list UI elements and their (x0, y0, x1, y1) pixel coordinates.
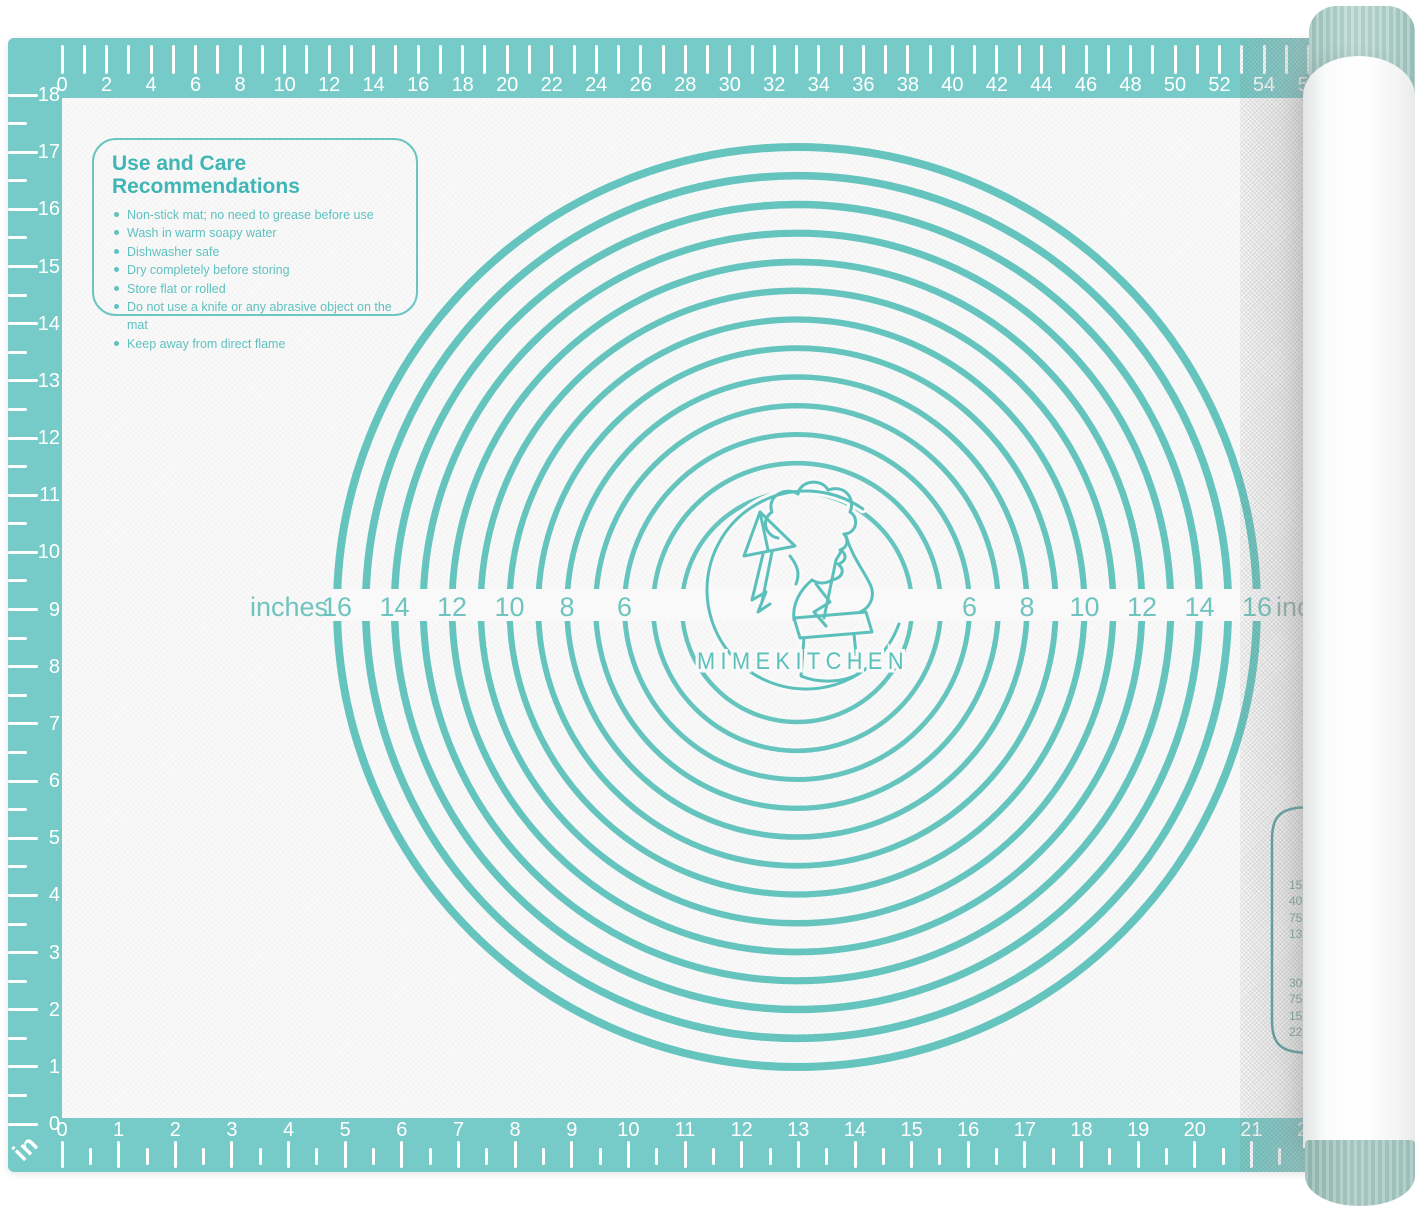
bottom-ruler-tick (627, 1141, 630, 1168)
top-ruler-tick (172, 45, 175, 74)
left-ruler-tick (8, 322, 38, 325)
bottom-ruler-half-tick (938, 1148, 941, 1165)
bottom-ruler-tick (854, 1141, 857, 1168)
left-ruler-tick (8, 494, 38, 497)
bottom-ruler-number: 16 (957, 1120, 979, 1140)
left-ruler-number: 0 (36, 1114, 60, 1134)
top-ruler-tick (906, 45, 909, 74)
bottom-ruler-half-tick (146, 1148, 149, 1165)
left-ruler-half-tick (8, 236, 27, 239)
top-ruler-tick (305, 45, 308, 74)
top-ruler-tick (194, 45, 197, 74)
top-ruler-tick (417, 45, 420, 74)
top-ruler-tick (884, 45, 887, 74)
left-ruler-number: 16 (36, 199, 60, 219)
bottom-ruler-half-tick (995, 1148, 998, 1165)
bottom-ruler-half-tick (825, 1148, 828, 1165)
bottom-ruler-tick (230, 1141, 233, 1168)
top-ruler-tick (1196, 45, 1199, 74)
bottom-ruler-half-tick (89, 1148, 92, 1165)
top-ruler-tick (239, 45, 242, 74)
left-ruler-half-tick (8, 122, 27, 125)
top-ruler-tick (728, 45, 731, 74)
left-ruler-half-tick (8, 694, 27, 697)
top-ruler-number: 14 (362, 75, 384, 95)
bottom-ruler-half-tick (882, 1148, 885, 1165)
mat-mesh-shadow (1240, 38, 1312, 1172)
bottom-ruler-number: 7 (453, 1120, 464, 1140)
top-ruler-tick (840, 45, 843, 74)
bottom-ruler-half-tick (202, 1148, 205, 1165)
care-item-text: Keep away from direct flame (127, 335, 285, 353)
bullet-dot (114, 267, 119, 272)
left-ruler-number: 5 (36, 828, 60, 848)
bottom-ruler-half-tick (769, 1148, 772, 1165)
top-ruler-tick (639, 45, 642, 74)
left-ruler-half-tick (8, 1094, 27, 1097)
bottom-ruler-half-tick (1165, 1148, 1168, 1165)
top-ruler-number: 48 (1119, 75, 1141, 95)
top-ruler-number: 24 (585, 75, 607, 95)
left-ruler-number: 1 (36, 1057, 60, 1077)
bottom-ruler-tick (287, 1141, 290, 1168)
top-ruler-tick (61, 45, 64, 74)
care-item: Dishwasher safe (112, 243, 400, 261)
top-ruler-tick (328, 45, 331, 74)
roll-body (1303, 56, 1415, 1148)
top-ruler-number: 34 (808, 75, 830, 95)
top-ruler-number: 26 (630, 75, 652, 95)
left-ruler-half-tick (8, 408, 27, 411)
left-ruler-number: 18 (36, 85, 60, 105)
left-ruler-half-tick (8, 579, 27, 582)
left-ruler-tick (8, 665, 38, 668)
bullet-dot (114, 212, 119, 217)
bottom-ruler-tick (910, 1141, 913, 1168)
top-ruler-number: 6 (190, 75, 201, 95)
top-ruler-tick (706, 45, 709, 74)
top-ruler-tick (483, 45, 486, 74)
top-ruler-tick (751, 45, 754, 74)
left-ruler-number: 14 (36, 314, 60, 334)
top-ruler-number: 20 (496, 75, 518, 95)
left-ruler-half-tick (8, 865, 27, 868)
left-ruler-number: 10 (36, 542, 60, 562)
top-ruler-tick (150, 45, 153, 74)
bottom-ruler-number: 11 (675, 1120, 696, 1140)
top-ruler-tick (461, 45, 464, 74)
bottom-ruler-tick (344, 1141, 347, 1168)
left-ruler-half-tick (8, 351, 27, 354)
left-ruler-tick (8, 894, 38, 897)
bottom-ruler-half-tick (429, 1148, 432, 1165)
top-ruler-tick (372, 45, 375, 74)
top-ruler-number: 32 (763, 75, 785, 95)
top-ruler-tick (439, 45, 442, 74)
top-ruler-tick (550, 45, 553, 74)
left-ruler-half-tick (8, 522, 27, 525)
product-photo-pastry-mat: inches16141210866810121416inchMIMEKITCHE… (0, 0, 1415, 1208)
left-ruler-half-tick (8, 637, 27, 640)
top-ruler-number: 50 (1164, 75, 1186, 95)
left-ruler-half-tick (8, 1037, 27, 1040)
bullet-dot (114, 304, 119, 309)
top-ruler-tick (1151, 45, 1154, 74)
bottom-ruler-half-tick (1052, 1148, 1055, 1165)
top-ruler-number: 46 (1075, 75, 1097, 95)
top-ruler-tick (862, 45, 865, 74)
bottom-ruler-tick (174, 1141, 177, 1168)
bottom-ruler-number: 2 (170, 1120, 181, 1140)
bottom-ruler-tick (400, 1141, 403, 1168)
top-ruler-number: 16 (407, 75, 429, 95)
left-ruler-number: 8 (36, 657, 60, 677)
bullet-dot (114, 341, 119, 346)
left-ruler-number: 11 (36, 485, 60, 505)
bottom-ruler-tick (514, 1141, 517, 1168)
bottom-ruler-tick (684, 1141, 687, 1168)
bottom-ruler-number: 1 (113, 1120, 124, 1140)
left-ruler-tick (8, 551, 38, 554)
top-ruler-tick (506, 45, 509, 74)
top-ruler-tick (662, 45, 665, 74)
top-ruler-tick (573, 45, 576, 74)
left-ruler-number: 12 (36, 428, 60, 448)
top-ruler-number: 44 (1030, 75, 1052, 95)
top-ruler-number: 8 (235, 75, 246, 95)
left-ruler-tick (8, 1065, 38, 1068)
bottom-ruler-half-tick (372, 1148, 375, 1165)
left-ruler-half-tick (8, 923, 27, 926)
bottom-ruler-half-tick (1222, 1148, 1225, 1165)
top-ruler-number: 22 (541, 75, 563, 95)
left-ruler-half-tick (8, 179, 27, 182)
bullet-dot (114, 230, 119, 235)
bottom-ruler-number: 4 (283, 1120, 294, 1140)
top-ruler-number: 12 (318, 75, 340, 95)
care-item-text: Wash in warm soapy water (127, 224, 277, 242)
left-ruler-tick (8, 1123, 38, 1126)
bottom-ruler-half-tick (1108, 1148, 1111, 1165)
top-ruler-tick (1174, 45, 1177, 74)
left-ruler-tick (8, 608, 38, 611)
bottom-ruler-number: 17 (1014, 1120, 1036, 1140)
care-item-text: Non-stick mat; no need to grease before … (127, 206, 374, 224)
left-ruler-number: 7 (36, 714, 60, 734)
bottom-ruler-number: 10 (617, 1120, 639, 1140)
left-ruler-number: 13 (36, 371, 60, 391)
bullet-dot (114, 249, 119, 254)
bottom-ruler-half-tick (259, 1148, 262, 1165)
top-ruler-tick (528, 45, 531, 74)
left-ruler-number: 4 (36, 885, 60, 905)
care-item: Wash in warm soapy water (112, 224, 400, 242)
top-ruler-number: 18 (452, 75, 474, 95)
top-ruler-number: 30 (719, 75, 741, 95)
care-item: Non-stick mat; no need to grease before … (112, 206, 400, 224)
left-ruler-half-tick (8, 294, 27, 297)
care-item: Do not use a knife or any abrasive objec… (112, 298, 400, 335)
bottom-ruler-tick (1023, 1141, 1026, 1168)
bottom-ruler-number: 14 (844, 1120, 866, 1140)
top-ruler-tick (1062, 45, 1065, 74)
bottom-ruler-number: 20 (1184, 1120, 1206, 1140)
left-ruler-tick (8, 951, 38, 954)
left-ruler-half-tick (8, 808, 27, 811)
left-ruler-tick (8, 837, 38, 840)
bullet-dot (114, 286, 119, 291)
bottom-ruler-tick (967, 1141, 970, 1168)
bottom-ruler-number: 5 (340, 1120, 351, 1140)
bottom-ruler-number: 3 (226, 1120, 237, 1140)
top-ruler-tick (105, 45, 108, 74)
left-ruler-number: 15 (36, 257, 60, 277)
top-ruler-number: 36 (852, 75, 874, 95)
top-ruler-tick (283, 45, 286, 74)
bottom-ruler-half-tick (655, 1148, 658, 1165)
left-ruler-tick (8, 379, 38, 382)
care-list: Non-stick mat; no need to grease before … (112, 206, 400, 353)
bottom-ruler-half-tick (485, 1148, 488, 1165)
left-ruler-tick (8, 151, 38, 154)
top-ruler-tick (350, 45, 353, 74)
top-ruler-tick (617, 45, 620, 74)
care-item: Dry completely before storing (112, 261, 400, 279)
top-ruler-number: 42 (986, 75, 1008, 95)
top-ruler-tick (216, 45, 219, 74)
top-ruler-tick (773, 45, 776, 74)
left-ruler-tick (8, 94, 38, 97)
bottom-ruler-tick (457, 1141, 460, 1168)
bottom-ruler-half-tick (315, 1148, 318, 1165)
left-ruler-number: 2 (36, 1000, 60, 1020)
bottom-ruler-number: 18 (1070, 1120, 1092, 1140)
left-ruler-half-tick (8, 751, 27, 754)
top-ruler-number: 2 (101, 75, 112, 95)
bottom-ruler-number: 8 (510, 1120, 521, 1140)
top-ruler-tick (261, 45, 264, 74)
top-ruler-number: 28 (674, 75, 696, 95)
bottom-ruler-number: 6 (396, 1120, 407, 1140)
bottom-ruler-half-tick (542, 1148, 545, 1165)
top-ruler-tick (995, 45, 998, 74)
care-title: Use and Care Recommendations (112, 152, 400, 198)
top-ruler-number: 52 (1208, 75, 1230, 95)
bottom-ruler-half-tick (712, 1148, 715, 1165)
care-item: Keep away from direct flame (112, 335, 400, 353)
care-item-text: Do not use a knife or any abrasive objec… (127, 298, 400, 335)
bottom-ruler-tick (570, 1141, 573, 1168)
left-ruler-tick (8, 722, 38, 725)
care-item: Store flat or rolled (112, 280, 400, 298)
roll-bottom-cap (1305, 1140, 1415, 1206)
top-ruler-tick (127, 45, 130, 74)
left-ruler-half-tick (8, 980, 27, 983)
left-ruler-half-tick (8, 465, 27, 468)
top-ruler-tick (973, 45, 976, 74)
top-ruler-tick (83, 45, 86, 74)
bottom-ruler-number: 9 (566, 1120, 577, 1140)
left-ruler-tick (8, 1008, 38, 1011)
bottom-ruler-tick (1080, 1141, 1083, 1168)
care-item-text: Dry completely before storing (127, 261, 290, 279)
top-ruler-number: 4 (145, 75, 156, 95)
top-ruler-tick (1107, 45, 1110, 74)
left-ruler-number: 9 (36, 600, 60, 620)
bottom-ruler-tick (117, 1141, 120, 1168)
bottom-ruler-tick (740, 1141, 743, 1168)
top-ruler-tick (1129, 45, 1132, 74)
bottom-ruler-number: 13 (787, 1120, 809, 1140)
bottom-ruler-half-tick (599, 1148, 602, 1165)
care-recommendations-box: Use and Care Recommendations Non-stick m… (92, 138, 418, 316)
bottom-ruler-number: 19 (1127, 1120, 1149, 1140)
care-item-text: Dishwasher safe (127, 243, 219, 261)
left-ruler-number: 6 (36, 771, 60, 791)
top-ruler-tick (1218, 45, 1221, 74)
left-ruler-number: 17 (36, 142, 60, 162)
left-ruler-tick (8, 780, 38, 783)
top-ruler-tick (1018, 45, 1021, 74)
top-ruler-tick (394, 45, 397, 74)
top-ruler-tick (817, 45, 820, 74)
top-ruler-tick (1040, 45, 1043, 74)
top-ruler-tick (684, 45, 687, 74)
top-ruler-tick (951, 45, 954, 74)
care-item-text: Store flat or rolled (127, 280, 226, 298)
top-ruler-tick (929, 45, 932, 74)
bottom-ruler-tick (797, 1141, 800, 1168)
bottom-ruler-number: 15 (900, 1120, 922, 1140)
bottom-ruler-number: 12 (731, 1120, 753, 1140)
bottom-ruler-tick (1193, 1141, 1196, 1168)
left-ruler-number: 3 (36, 943, 60, 963)
bottom-ruler-tick (1137, 1141, 1140, 1168)
top-ruler-number: 38 (897, 75, 919, 95)
left-ruler-tick (8, 208, 38, 211)
top-ruler-number: 40 (941, 75, 963, 95)
left-ruler-tick (8, 265, 38, 268)
top-ruler-tick (795, 45, 798, 74)
left-ruler-tick (8, 437, 38, 440)
top-ruler-tick (1085, 45, 1088, 74)
bottom-ruler-tick (61, 1141, 64, 1168)
top-ruler-tick (595, 45, 598, 74)
top-ruler-number: 10 (273, 75, 295, 95)
